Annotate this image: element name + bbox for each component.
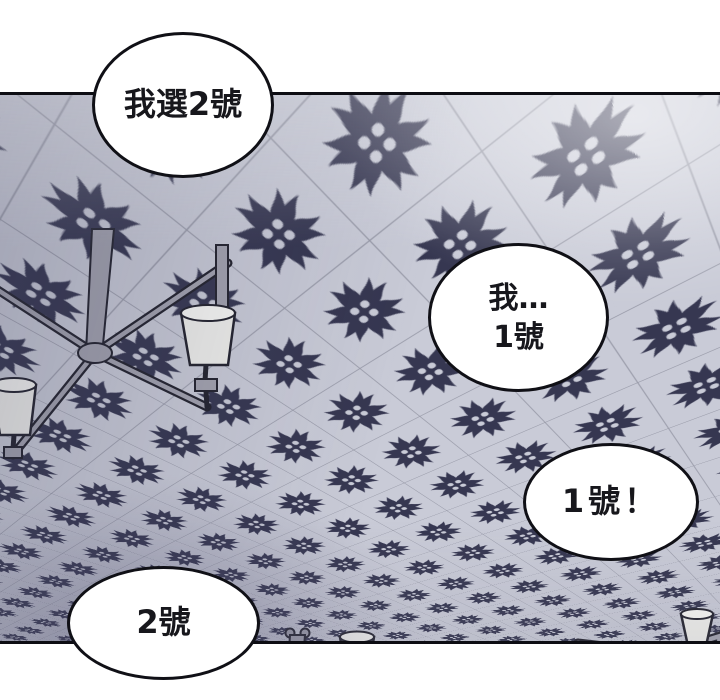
chandelier-right [570, 600, 720, 641]
chandelier-hub [78, 343, 112, 363]
speech-text-line2: 1號 [493, 318, 544, 357]
speech-bubble-1: 我選2號 [92, 32, 274, 178]
comic-page: { "bubbles": [ { "text": "我選2號" }, { "li… [0, 0, 720, 700]
lamp-shade [0, 378, 36, 458]
speech-text-line1: 我… [489, 279, 549, 318]
lamp-shade [181, 305, 235, 407]
speech-text: 1號！ [562, 481, 660, 523]
chandelier-column [86, 229, 114, 355]
speech-text: 我選2號 [124, 84, 242, 126]
speech-bubble-4: 2號 [67, 566, 260, 680]
lamp-shade [681, 609, 713, 641]
speech-bubble-2: 我… 1號 [428, 243, 609, 392]
lamp-shade [340, 632, 374, 642]
speech-text: 2號 [136, 602, 190, 644]
chandelier-top-left [0, 223, 248, 463]
chandelier-downrod [216, 245, 228, 307]
speech-bubble-3: 1號！ [523, 443, 699, 561]
